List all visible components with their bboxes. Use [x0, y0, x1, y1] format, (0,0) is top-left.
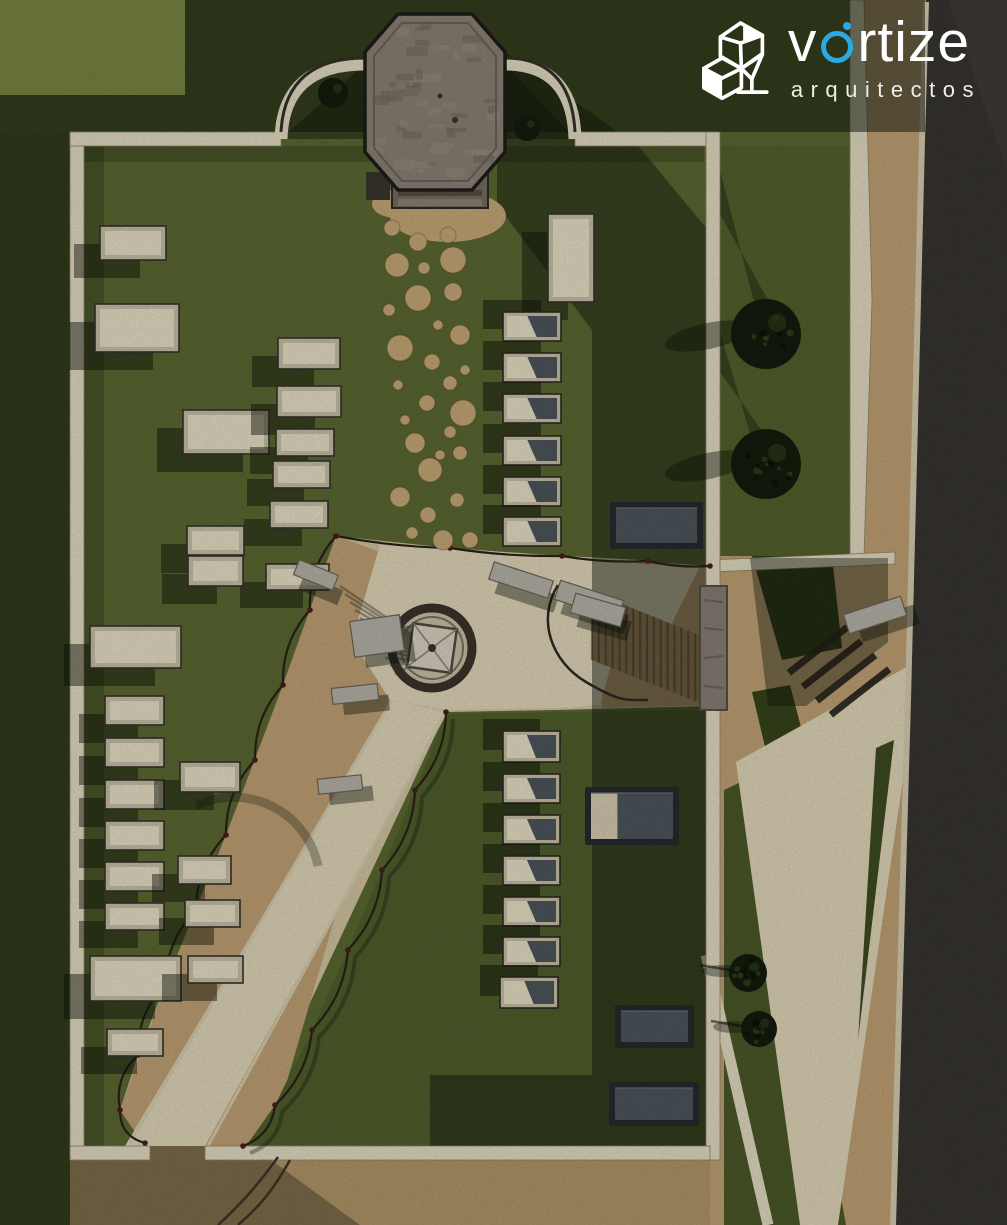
- icon-top-cube-edge: [740, 43, 741, 68]
- icon-glass-bowl: [741, 55, 762, 80]
- vortize-cubes-icon: [702, 14, 772, 102]
- architectural-site-plan: vrtize arquitectos: [0, 0, 1007, 1225]
- render-grain-overlay: [0, 0, 1007, 1225]
- logo-text: vrtize arquitectos: [788, 14, 981, 103]
- wordmark-start: v: [788, 10, 818, 74]
- brand-subtitle: arquitectos: [788, 77, 981, 103]
- accent-dot-icon: [843, 22, 851, 30]
- wordmark-end: rtize: [857, 10, 970, 74]
- site-plan-rendering: [0, 0, 1007, 1225]
- brand-o-accent-icon: [821, 31, 853, 63]
- vortize-logo: vrtize arquitectos: [702, 14, 981, 103]
- brand-wordmark: vrtize: [788, 14, 981, 71]
